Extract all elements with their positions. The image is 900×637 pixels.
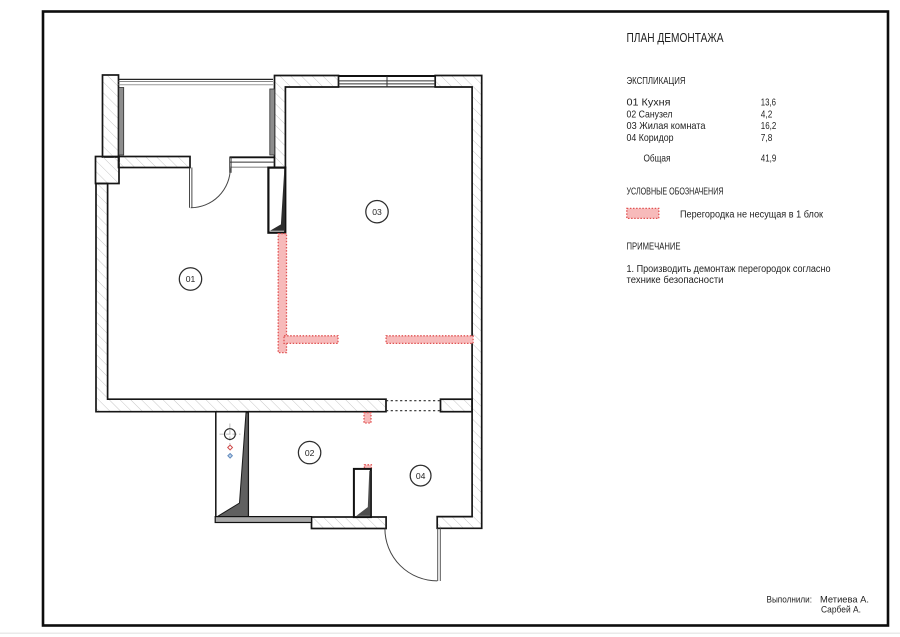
svg-text:Общая: Общая (644, 152, 671, 164)
svg-text:ЭКСПЛИКАЦИЯ: ЭКСПЛИКАЦИЯ (627, 76, 686, 87)
svg-text:7,8: 7,8 (761, 133, 773, 144)
svg-text:Перегородка не несущая в 1 бло: Перегородка не несущая в 1 блок (680, 208, 824, 220)
svg-text:01 Кухня: 01 Кухня (627, 98, 671, 109)
svg-text:УСЛОВНЫЕ ОБОЗНАЧЕНИЯ: УСЛОВНЫЕ ОБОЗНАЧЕНИЯ (627, 187, 724, 198)
svg-text:02 Санузел: 02 Санузел (627, 109, 673, 120)
svg-text:ПРИМЕЧАНИЕ: ПРИМЕЧАНИЕ (627, 241, 681, 252)
svg-text:02: 02 (305, 448, 315, 458)
svg-text:01: 01 (186, 274, 196, 284)
svg-text:16,2: 16,2 (761, 121, 777, 132)
svg-text:04 Коридор: 04 Коридор (627, 133, 674, 144)
svg-text:ПЛАН ДЕМОНТАЖА: ПЛАН ДЕМОНТАЖА (627, 31, 725, 45)
svg-text:13,6: 13,6 (761, 98, 776, 109)
svg-text:03: 03 (372, 207, 382, 217)
svg-text:1. Производить демонтаж перего: 1. Производить демонтаж перегородок согл… (627, 264, 831, 275)
svg-text:Метиева А.: Метиева А. (820, 594, 869, 604)
svg-text:Выполнили:: Выполнили: (767, 594, 813, 604)
svg-text:03 Жилая комната: 03 Жилая комната (627, 121, 706, 132)
svg-text:41,9: 41,9 (761, 153, 777, 164)
svg-text:4,2: 4,2 (761, 109, 773, 120)
svg-text:04: 04 (416, 471, 426, 481)
svg-text:Сарбей А.: Сарбей А. (821, 605, 861, 615)
svg-text:технике безопасности: технике безопасности (627, 274, 724, 286)
